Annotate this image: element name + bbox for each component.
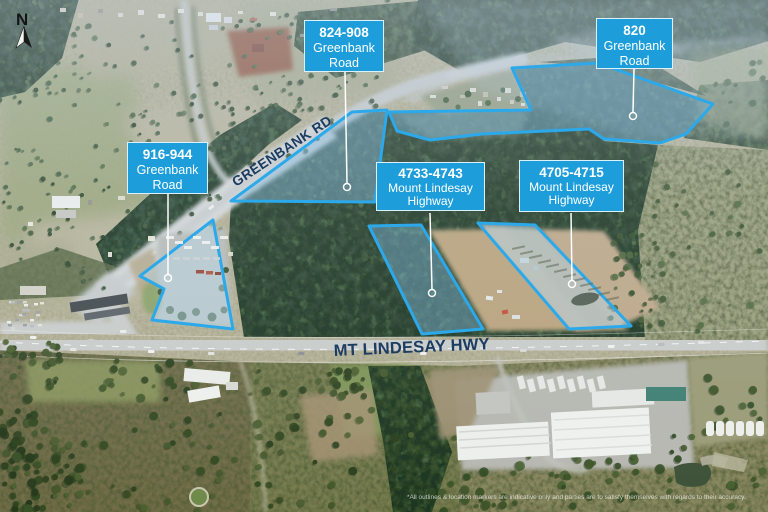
svg-text:*All outlines & location marke: *All outlines & location markers are ind… <box>407 494 746 501</box>
svg-text:N: N <box>16 10 28 29</box>
